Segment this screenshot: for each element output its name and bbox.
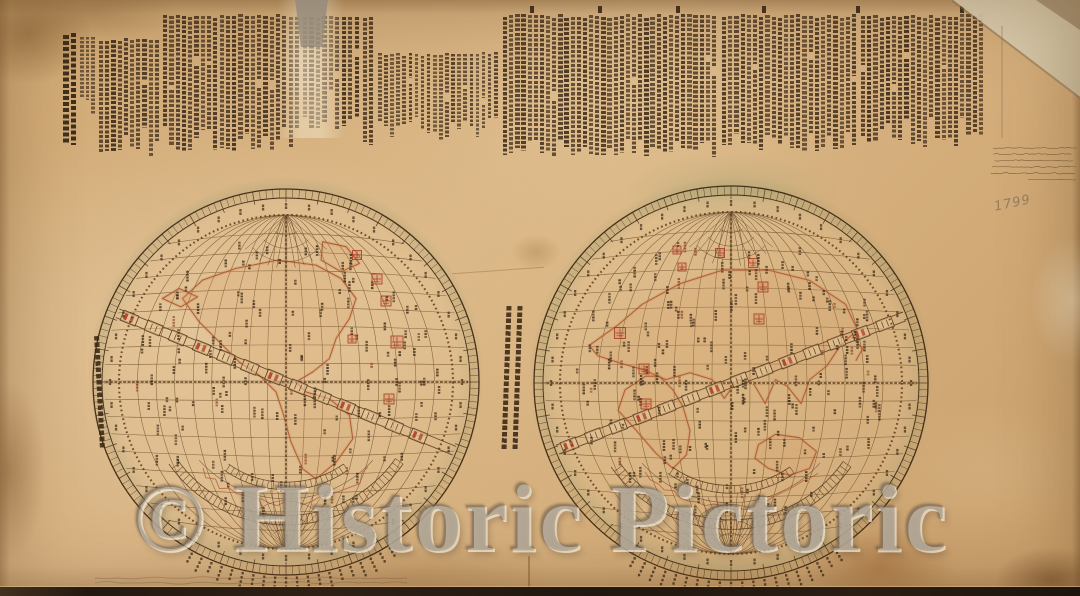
red-label xyxy=(749,259,758,268)
map-scan: © Historic Pictoric 1799 xyxy=(0,0,1080,596)
red-label xyxy=(381,296,391,306)
red-label xyxy=(348,335,356,343)
red-label xyxy=(716,249,725,258)
handwritten-note xyxy=(991,148,1077,181)
bottom-dark-strip xyxy=(0,587,1080,596)
western-hemisphere xyxy=(93,189,479,592)
red-label xyxy=(353,251,362,260)
red-label xyxy=(372,274,382,284)
double-hemisphere-map xyxy=(0,0,1080,596)
red-label xyxy=(641,399,651,409)
red-label xyxy=(754,314,764,324)
crease-line xyxy=(1001,26,1003,138)
red-label xyxy=(673,246,681,254)
red-label xyxy=(615,328,626,339)
red-label xyxy=(384,394,394,404)
red-label xyxy=(678,263,686,271)
eastern-hemisphere xyxy=(534,186,928,596)
red-label xyxy=(758,282,768,292)
red-label xyxy=(639,364,649,374)
red-label xyxy=(391,336,403,348)
